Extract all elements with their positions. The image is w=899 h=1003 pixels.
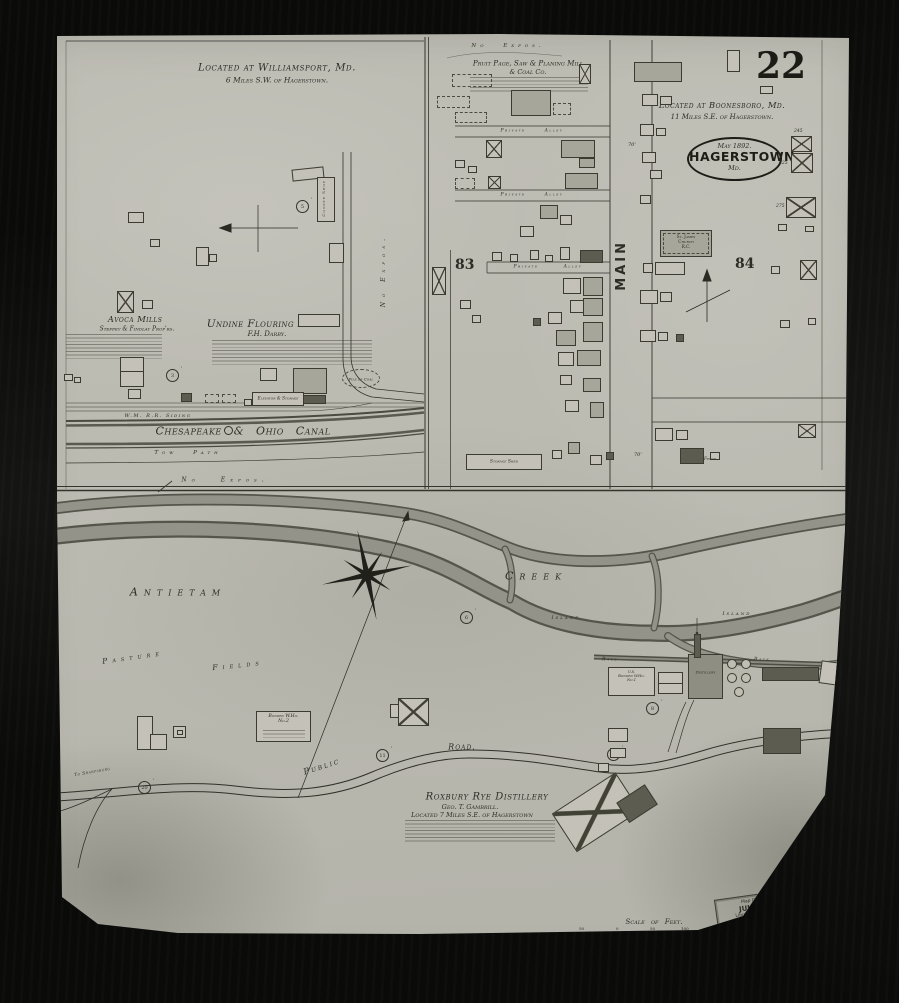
stable-building bbox=[786, 197, 816, 218]
building bbox=[643, 263, 653, 273]
stable-building bbox=[791, 136, 812, 152]
island-label: Island bbox=[723, 611, 752, 617]
canal-benchmark: · bbox=[224, 426, 233, 435]
hagerstown-oval-stamp: May 1892. HAGERSTOWN Md. bbox=[687, 137, 782, 181]
tow-path-label: Tow Path bbox=[154, 450, 221, 456]
antietam-creek bbox=[57, 499, 847, 666]
building bbox=[540, 205, 558, 219]
lumber-pile bbox=[452, 74, 492, 87]
lumber-shed bbox=[222, 394, 236, 403]
building bbox=[808, 318, 816, 325]
block-83-number: 83 bbox=[455, 257, 474, 273]
storage-shed-label: Storage Shed bbox=[490, 460, 518, 465]
building bbox=[558, 352, 574, 366]
tank bbox=[741, 673, 751, 683]
building bbox=[128, 389, 141, 399]
circled-value: 5 bbox=[301, 204, 304, 210]
race-label: Race bbox=[602, 657, 618, 663]
building bbox=[64, 374, 73, 381]
feet-tick: ' bbox=[153, 778, 154, 784]
antietam-label: Antietam bbox=[130, 586, 226, 599]
building bbox=[658, 332, 668, 341]
building bbox=[560, 375, 572, 385]
scale-tick: 50 bbox=[650, 926, 655, 931]
building bbox=[556, 330, 576, 346]
island-label: Island bbox=[552, 615, 581, 621]
building bbox=[780, 320, 790, 328]
building bbox=[552, 450, 562, 459]
building bbox=[565, 400, 579, 412]
boonesboro-title: Located at Boonesboro, Md. bbox=[659, 101, 785, 111]
building bbox=[128, 212, 144, 223]
bonded2-line2: No.2 bbox=[257, 719, 310, 724]
scale-bar-graphic bbox=[583, 931, 742, 941]
mill-no-expos-label: No Expos. bbox=[471, 43, 544, 49]
williamsport-subtitle: 6 Miles S.W. of Hagerstown. bbox=[226, 76, 328, 85]
scanned-map-page: Located at Williamsport, Md. 6 Miles S.W… bbox=[0, 0, 899, 1003]
williamsport-title: Located at Williamsport, Md. bbox=[198, 63, 356, 74]
building bbox=[640, 330, 656, 342]
building-partition bbox=[121, 371, 143, 372]
circled-number: 20 ' bbox=[138, 781, 151, 794]
oval-state: Md. bbox=[689, 164, 780, 172]
bonded-warehouse-2: Bonded W.Ho. No.2 bbox=[256, 711, 311, 742]
building bbox=[577, 350, 601, 366]
house-number: 245 bbox=[794, 129, 803, 134]
building bbox=[510, 254, 518, 262]
building bbox=[634, 62, 682, 82]
stamp-line2: JUL 1955 bbox=[716, 898, 796, 917]
coal-shed bbox=[608, 728, 628, 742]
tower-structure bbox=[694, 634, 701, 658]
benchmark-dot: · bbox=[228, 428, 229, 433]
feet-tick: ' bbox=[391, 746, 392, 752]
lumber-pile bbox=[437, 96, 470, 108]
building bbox=[640, 195, 651, 204]
oval-city: HAGERSTOWN bbox=[689, 150, 780, 164]
building bbox=[563, 278, 581, 294]
lumber-pile bbox=[455, 178, 475, 189]
handwritten-mark: 4/16 bbox=[785, 935, 807, 951]
building bbox=[606, 452, 614, 460]
no-expos-right-label: No Expos. bbox=[380, 234, 387, 307]
building bbox=[579, 158, 595, 168]
feet-tick: ' bbox=[475, 608, 476, 614]
building bbox=[660, 292, 672, 302]
stable-building bbox=[117, 291, 134, 313]
church-label-block: St. James Church R.C. bbox=[661, 231, 711, 256]
scale-tick: 100 bbox=[681, 926, 689, 931]
circled-number: 6 ' bbox=[460, 611, 473, 624]
circled-value: 8 bbox=[651, 706, 654, 712]
mill-title: Pruit Page, Saw & Planing Mill bbox=[473, 59, 583, 68]
race-label: Race bbox=[754, 657, 770, 663]
building bbox=[455, 160, 465, 168]
avoca-mills-title: Avoca Mills bbox=[108, 315, 162, 325]
building bbox=[655, 262, 685, 275]
building bbox=[676, 430, 688, 440]
roxbury-title: Roxbury Rye Distillery bbox=[426, 792, 549, 803]
building bbox=[545, 255, 553, 262]
building bbox=[762, 667, 819, 681]
alley-label: Private Alley bbox=[501, 129, 564, 134]
feet-tick: ' bbox=[661, 699, 662, 705]
tank bbox=[741, 659, 751, 669]
tank bbox=[727, 659, 737, 669]
rr-siding-label: W.M. R.R. Siding bbox=[125, 413, 192, 419]
stable-building bbox=[798, 424, 816, 438]
building bbox=[642, 152, 656, 163]
saw-mill-building bbox=[511, 90, 551, 116]
avoca-owner: Steffey & Findlay Prop'rs. bbox=[100, 326, 175, 333]
stable-building bbox=[432, 267, 446, 295]
building bbox=[150, 239, 160, 247]
scale-label: Scale of Feet. bbox=[626, 918, 683, 926]
canal-label: Chesapeake & Ohio Canal bbox=[155, 425, 330, 438]
building-inner bbox=[177, 730, 183, 735]
tank-structure bbox=[579, 64, 591, 84]
building bbox=[650, 170, 662, 179]
cooper-shop-building: Cooper Shop bbox=[317, 177, 335, 222]
building bbox=[805, 226, 814, 232]
circled-number: 5 ' bbox=[296, 200, 309, 213]
building bbox=[150, 734, 167, 750]
barn-building bbox=[398, 698, 429, 726]
roxbury-owner: Geo. T. Gambrill. bbox=[442, 803, 499, 811]
building bbox=[590, 402, 604, 418]
building bbox=[472, 315, 481, 323]
barrel-storage-building bbox=[298, 314, 340, 327]
main-street-label: MAIN bbox=[614, 240, 629, 291]
building bbox=[74, 377, 81, 383]
circled-number: 11 ' bbox=[376, 749, 389, 762]
lumber-shed bbox=[205, 394, 219, 403]
storage-shed-building: Storage Shed bbox=[466, 454, 542, 470]
building bbox=[548, 312, 562, 324]
building bbox=[520, 226, 534, 237]
pile-of-coal-outline: Pile of Coal bbox=[342, 369, 380, 388]
building bbox=[640, 290, 658, 304]
building bbox=[598, 763, 609, 772]
building bbox=[142, 300, 153, 309]
alley-label: Private Alley bbox=[501, 193, 564, 198]
building bbox=[583, 322, 603, 342]
building bbox=[560, 215, 572, 225]
roxbury-location: Located 7 Miles S.E. of Hagerstown bbox=[411, 811, 533, 819]
circled-value: 20 bbox=[141, 785, 147, 791]
building bbox=[468, 166, 477, 173]
stable-building bbox=[488, 176, 501, 189]
sheet-number: 22 bbox=[756, 48, 806, 84]
circled-value: 6 bbox=[465, 615, 468, 621]
road-label: Road. bbox=[448, 743, 476, 752]
lumber-pile bbox=[553, 103, 571, 115]
building bbox=[676, 334, 684, 342]
elevator-label: Elevator & Storage bbox=[258, 397, 299, 402]
stable-building bbox=[791, 153, 813, 173]
building bbox=[640, 124, 654, 136]
no-expos-bottom-label: No Expos. bbox=[181, 477, 268, 484]
pile-of-coal-label: Pile of Coal bbox=[349, 376, 374, 381]
building bbox=[680, 448, 704, 464]
scale-tick: 50 bbox=[579, 926, 584, 931]
lumber-pile bbox=[455, 112, 487, 123]
fine-print-lines bbox=[405, 820, 555, 842]
street-width-dim: 70' bbox=[634, 452, 642, 458]
building bbox=[771, 266, 780, 274]
bonded-warehouse-1: U.S. Bonded W.Ho. No.1 bbox=[608, 667, 655, 696]
building bbox=[460, 300, 471, 309]
building bbox=[656, 128, 666, 136]
building bbox=[568, 442, 580, 454]
building bbox=[660, 96, 672, 105]
cooper-shop-label: Cooper Shop bbox=[321, 180, 326, 217]
building bbox=[658, 672, 683, 694]
building bbox=[209, 254, 217, 262]
fence-label: Fence bbox=[704, 456, 716, 461]
building-partition bbox=[659, 683, 682, 684]
building bbox=[760, 86, 773, 94]
building bbox=[533, 318, 541, 326]
building bbox=[642, 94, 658, 106]
building bbox=[530, 250, 539, 260]
building bbox=[181, 393, 192, 402]
stable-building bbox=[800, 260, 817, 280]
building bbox=[580, 250, 603, 263]
bonded1-line3: No.1 bbox=[609, 678, 654, 682]
map-paper: Located at Williamsport, Md. 6 Miles S.W… bbox=[0, 0, 899, 1003]
building bbox=[561, 140, 595, 158]
building bbox=[173, 726, 186, 738]
creek-label: Creek bbox=[505, 570, 567, 583]
avoca-mill-building bbox=[120, 357, 144, 387]
elevator-building: Elevator & Storage bbox=[252, 392, 304, 406]
building bbox=[819, 660, 849, 687]
building bbox=[655, 428, 673, 441]
circled-value: 11 bbox=[379, 753, 385, 759]
undine-mill-building bbox=[293, 368, 327, 394]
fine-print-lines bbox=[212, 340, 372, 366]
circled-value: 3 bbox=[171, 373, 174, 379]
undine-owner: F.H. Darby. bbox=[248, 330, 287, 338]
survey-cross bbox=[220, 205, 298, 252]
boonesboro-subtitle: 11 Miles S.E. of Hagerstown. bbox=[671, 113, 774, 121]
building bbox=[583, 378, 601, 392]
building bbox=[329, 243, 344, 263]
distillery-building: Distillery bbox=[688, 654, 723, 699]
street-width-dim: 70' bbox=[628, 142, 636, 148]
building bbox=[244, 399, 252, 406]
distillery-label: Distillery bbox=[696, 670, 716, 675]
church-building: St. James Church R.C. bbox=[660, 230, 712, 257]
building bbox=[778, 224, 787, 231]
building bbox=[196, 247, 209, 266]
building bbox=[727, 50, 740, 72]
feet-tick: ' bbox=[311, 197, 312, 203]
fine-print-lines bbox=[263, 730, 305, 738]
building bbox=[590, 455, 602, 465]
feet-tick: ' bbox=[181, 366, 182, 372]
building bbox=[583, 277, 603, 296]
building bbox=[492, 252, 502, 261]
scale-tick: 0 bbox=[616, 926, 619, 931]
building bbox=[583, 298, 603, 316]
circled-number: 3 ' bbox=[166, 369, 179, 382]
tank bbox=[734, 687, 744, 697]
building bbox=[763, 728, 801, 754]
block-84-number: 84 bbox=[735, 256, 754, 272]
scale-tick: 150 bbox=[734, 926, 742, 931]
tank bbox=[727, 673, 737, 683]
stable-building bbox=[486, 140, 502, 158]
house-number: 275 bbox=[776, 204, 785, 209]
church-name-line3: R.C. bbox=[661, 244, 711, 249]
alley-label: Private Alley bbox=[514, 265, 583, 270]
mill-title2: & Coal Co. bbox=[509, 68, 546, 76]
north-arrow bbox=[686, 270, 730, 322]
house-number: 225 bbox=[779, 161, 788, 166]
fine-print-lines bbox=[66, 334, 162, 360]
building bbox=[560, 247, 570, 260]
building bbox=[565, 173, 598, 189]
building bbox=[260, 368, 277, 381]
circled-number: 8 ' bbox=[646, 702, 659, 715]
